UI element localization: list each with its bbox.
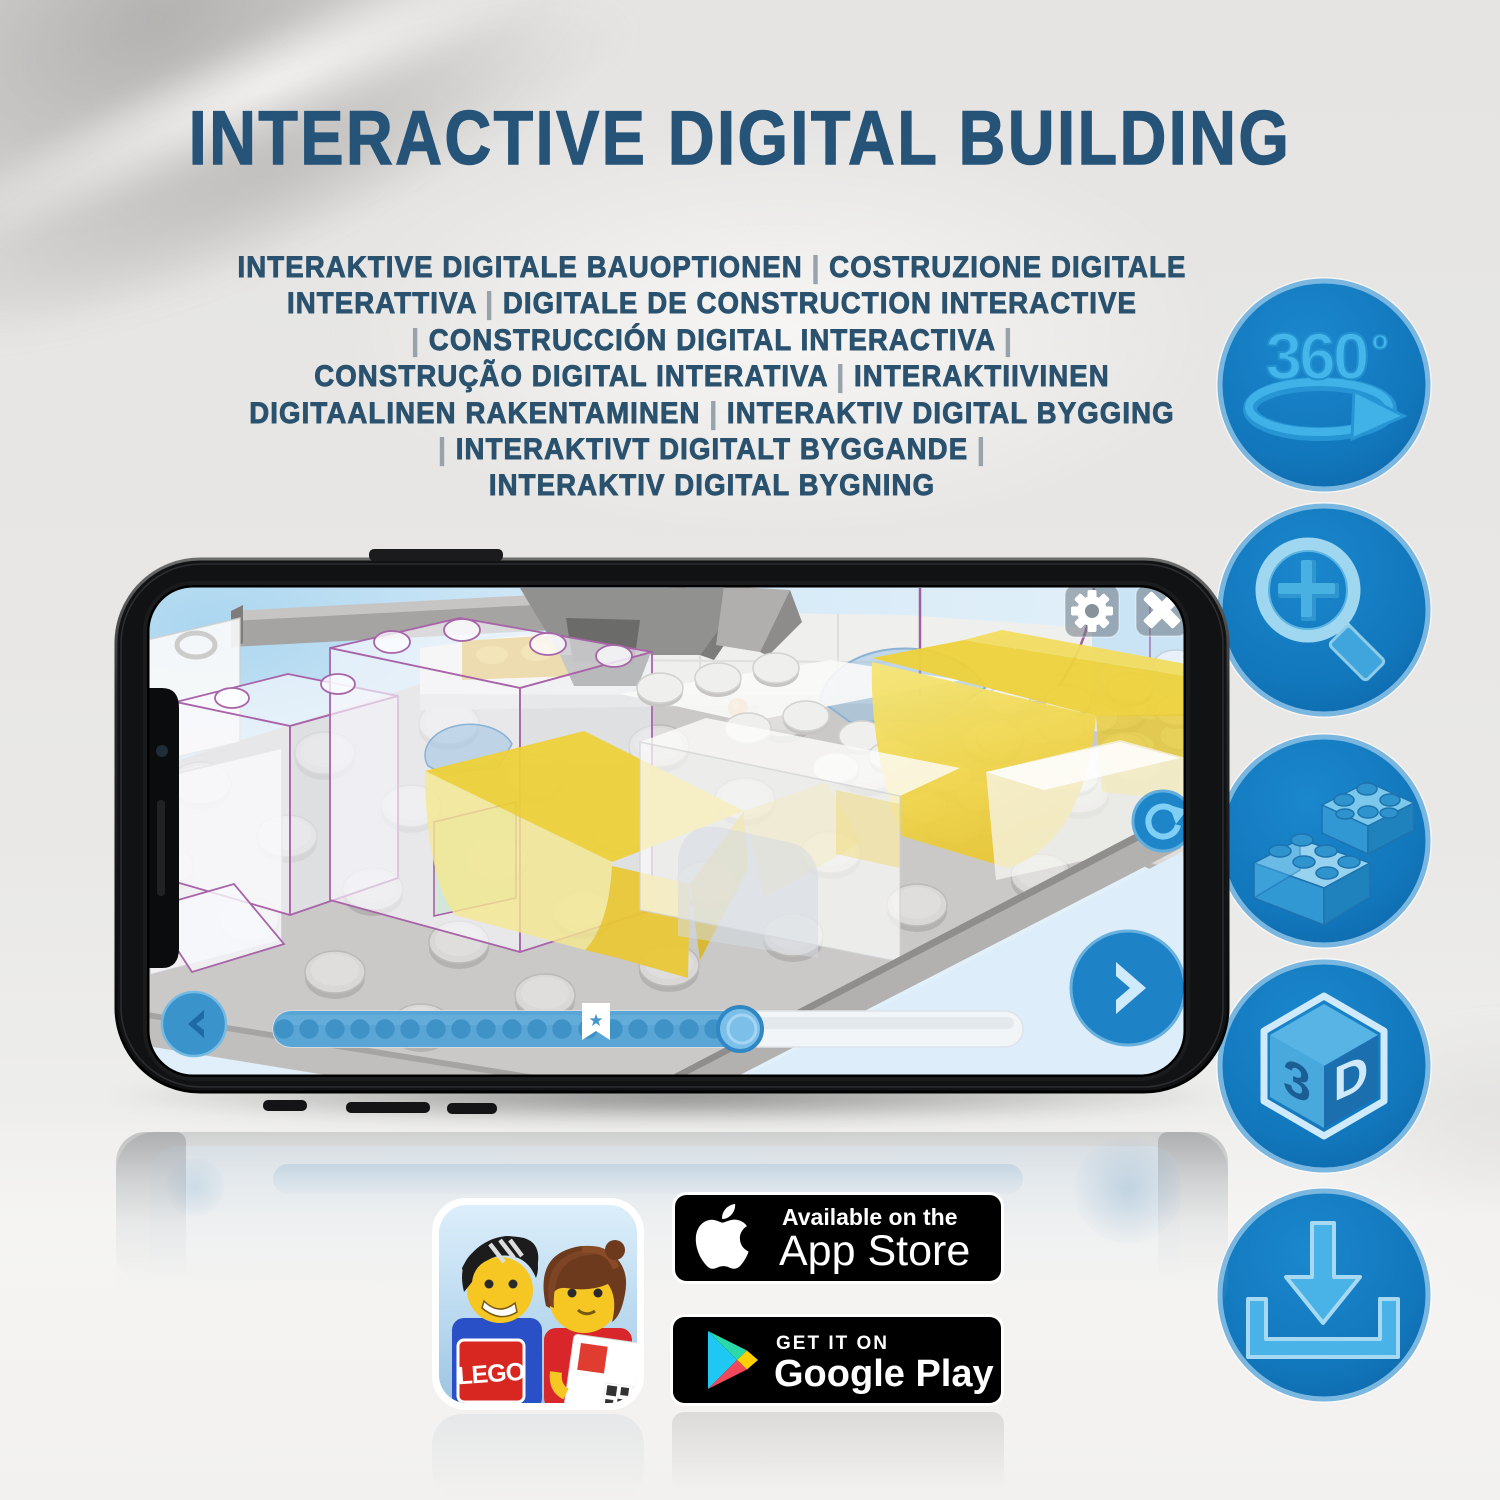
svg-text:LEGO: LEGO [456,1358,525,1391]
svg-text:360: 360 [1265,319,1366,393]
svg-text:App Store: App Store [779,1227,970,1275]
svg-text:★: ★ [588,1011,603,1030]
svg-text:Google Play: Google Play [774,1353,994,1395]
svg-text:GET IT ON: GET IT ON [776,1333,889,1354]
svg-text:o: o [1372,325,1389,355]
